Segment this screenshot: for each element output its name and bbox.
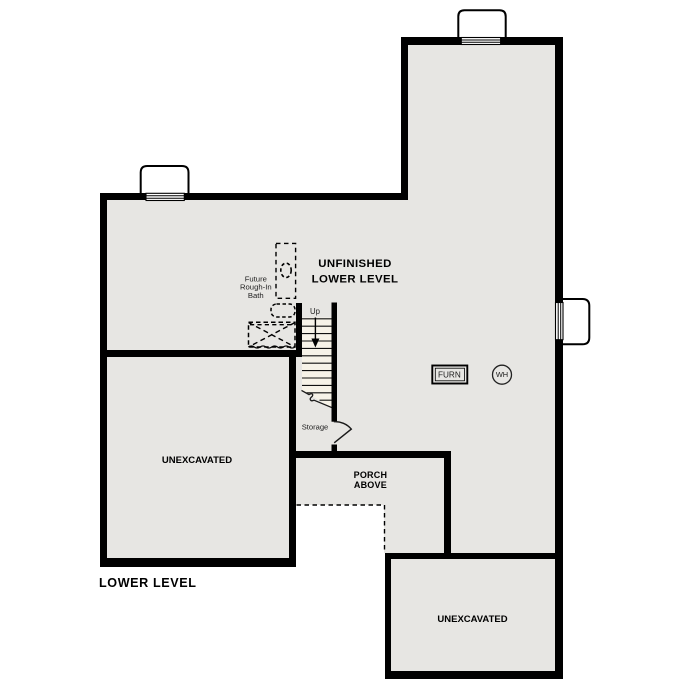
svg-text:Storage: Storage [302, 422, 329, 431]
svg-text:UNEXCAVATED: UNEXCAVATED [162, 455, 232, 466]
svg-text:LOWER LEVEL: LOWER LEVEL [312, 274, 399, 286]
svg-text:FURN: FURN [438, 371, 461, 380]
svg-text:PORCH: PORCH [354, 470, 388, 480]
svg-text:LOWER LEVEL: LOWER LEVEL [99, 576, 197, 590]
svg-text:UNEXCAVATED: UNEXCAVATED [437, 614, 507, 625]
svg-text:Up: Up [310, 307, 321, 316]
svg-text:WH: WH [496, 370, 508, 379]
svg-text:Bath: Bath [248, 291, 264, 300]
svg-text:UNFINISHED: UNFINISHED [318, 258, 392, 270]
svg-text:ABOVE: ABOVE [354, 480, 387, 490]
